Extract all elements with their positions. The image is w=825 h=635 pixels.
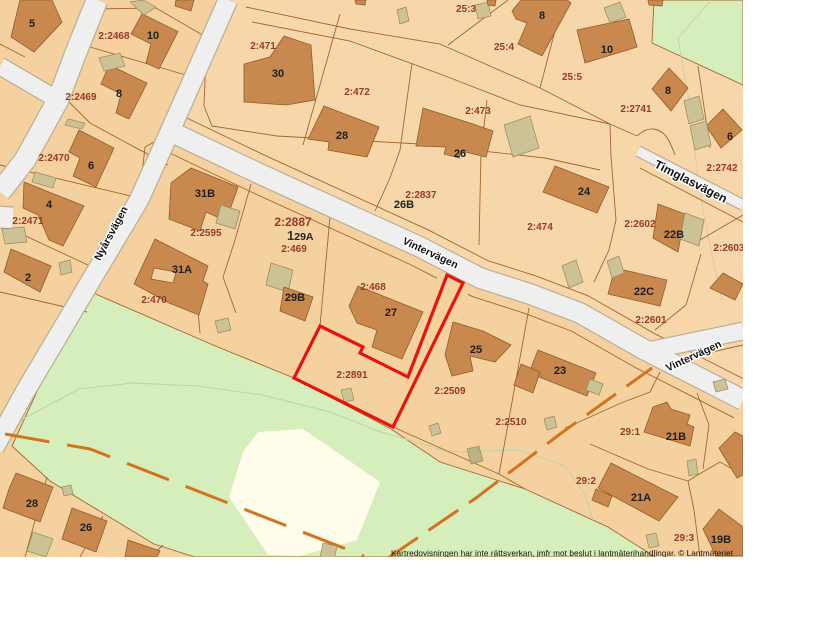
svg-text:2:2469: 2:2469 xyxy=(65,92,97,103)
svg-text:26B: 26B xyxy=(394,199,414,211)
svg-text:8: 8 xyxy=(539,10,545,22)
svg-text:2:2742: 2:2742 xyxy=(706,163,738,174)
svg-text:23: 23 xyxy=(554,365,566,377)
svg-text:2:2510: 2:2510 xyxy=(495,417,527,428)
svg-text:30: 30 xyxy=(272,68,284,80)
svg-text:2:473: 2:473 xyxy=(465,106,491,117)
svg-text:31B: 31B xyxy=(195,188,215,200)
svg-text:25:3: 25:3 xyxy=(456,4,476,15)
svg-text:29:1: 29:1 xyxy=(620,427,640,438)
svg-text:5: 5 xyxy=(29,18,35,30)
svg-text:2:2891: 2:2891 xyxy=(336,370,368,381)
svg-text:2:2471: 2:2471 xyxy=(12,216,44,227)
svg-text:8: 8 xyxy=(116,88,122,100)
svg-text:2:2601: 2:2601 xyxy=(635,315,667,326)
svg-text:2:2470: 2:2470 xyxy=(38,153,70,164)
svg-text:129A: 129A xyxy=(287,228,314,243)
svg-text:2:469: 2:469 xyxy=(281,244,307,255)
svg-text:26: 26 xyxy=(454,148,466,160)
svg-text:2:2595: 2:2595 xyxy=(190,228,222,239)
svg-text:29B: 29B xyxy=(285,292,305,304)
svg-text:29:3: 29:3 xyxy=(674,533,694,544)
svg-text:10: 10 xyxy=(147,30,159,42)
svg-text:27: 27 xyxy=(385,307,397,319)
svg-text:2:2603: 2:2603 xyxy=(713,243,745,254)
svg-text:25:4: 25:4 xyxy=(494,42,514,53)
svg-text:24: 24 xyxy=(578,186,591,198)
svg-text:26: 26 xyxy=(80,522,92,534)
svg-text:21A: 21A xyxy=(631,492,651,504)
svg-text:8: 8 xyxy=(665,85,671,97)
svg-text:2:470: 2:470 xyxy=(141,295,167,306)
svg-text:2:468: 2:468 xyxy=(360,282,386,293)
svg-text:2:2509: 2:2509 xyxy=(434,386,466,397)
svg-text:28: 28 xyxy=(26,498,38,510)
svg-text:Kartredovisningen har inte rät: Kartredovisningen har inte rättsverkan, … xyxy=(391,549,734,558)
svg-text:2: 2 xyxy=(25,272,31,284)
svg-text:2:2741: 2:2741 xyxy=(620,104,652,115)
svg-text:22C: 22C xyxy=(634,286,654,298)
svg-text:6: 6 xyxy=(727,131,733,143)
svg-text:31A: 31A xyxy=(172,264,192,276)
svg-text:21B: 21B xyxy=(666,431,686,443)
svg-text:29:2: 29:2 xyxy=(576,476,596,487)
svg-text:2:471: 2:471 xyxy=(250,41,276,52)
svg-text:2:474: 2:474 xyxy=(527,222,553,233)
svg-text:2:472: 2:472 xyxy=(344,87,370,98)
svg-text:25: 25 xyxy=(470,344,482,356)
svg-text:10: 10 xyxy=(601,44,613,56)
svg-text:4: 4 xyxy=(46,199,53,211)
svg-text:28: 28 xyxy=(336,130,348,142)
svg-text:6: 6 xyxy=(88,160,94,172)
svg-text:2:2602: 2:2602 xyxy=(624,219,656,230)
svg-text:2:2887: 2:2887 xyxy=(274,215,312,229)
svg-text:19B: 19B xyxy=(711,534,731,546)
svg-text:25:5: 25:5 xyxy=(562,72,582,83)
svg-text:22B: 22B xyxy=(664,229,684,241)
svg-text:2:2468: 2:2468 xyxy=(98,31,130,42)
